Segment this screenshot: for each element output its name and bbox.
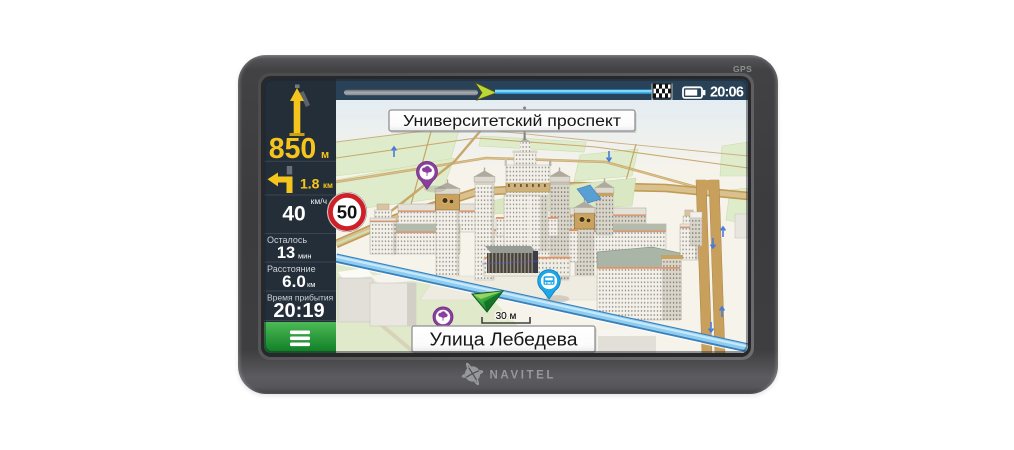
svg-text:20:06: 20:06 — [710, 85, 744, 101]
svg-text:м: м — [321, 149, 329, 161]
svg-text:1.8: 1.8 — [300, 176, 320, 192]
svg-text:NAVITEL: NAVITEL — [490, 370, 557, 382]
svg-text:км/ч: км/ч — [311, 196, 327, 206]
svg-text:20:19: 20:19 — [273, 300, 324, 322]
svg-text:850: 850 — [269, 133, 317, 165]
svg-text:км: км — [323, 181, 333, 190]
svg-text:Улица Лебедева: Улица Лебедева — [430, 329, 579, 349]
svg-text:Университетский проспект: Университетский проспект — [403, 113, 621, 130]
svg-text:30 м: 30 м — [496, 311, 517, 322]
svg-text:6.0: 6.0 — [282, 272, 306, 291]
svg-text:км: км — [307, 280, 315, 289]
svg-text:40: 40 — [282, 203, 305, 226]
svg-text:13: 13 — [277, 244, 295, 262]
svg-text:50: 50 — [337, 202, 358, 223]
svg-text:мин: мин — [298, 252, 312, 261]
